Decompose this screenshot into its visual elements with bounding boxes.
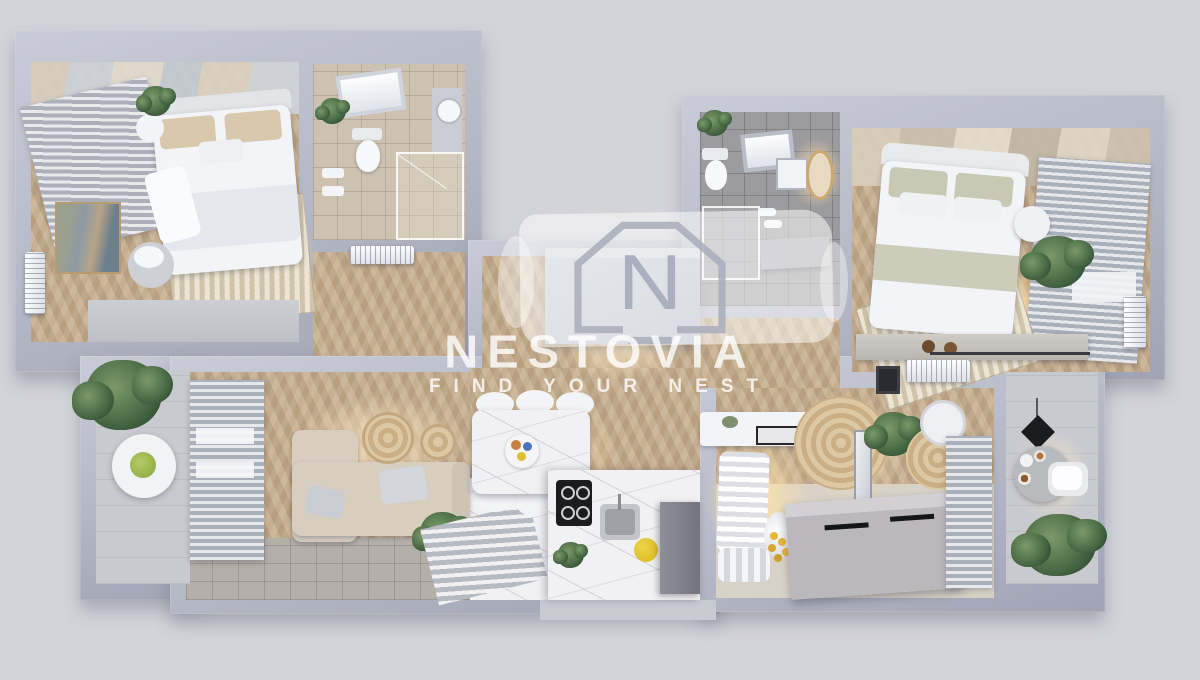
wall-artwork (55, 202, 121, 274)
food (511, 440, 521, 450)
towel (322, 168, 344, 178)
towel (322, 186, 344, 196)
plate (1018, 472, 1031, 485)
plate (1034, 450, 1046, 462)
toilet (705, 160, 727, 190)
tv-rail (930, 352, 1090, 355)
logo-letter-n: N (604, 240, 696, 324)
brand-tagline: FIND YOUR NEST (390, 376, 810, 398)
bedroom-2-bed (866, 142, 1030, 346)
window (196, 462, 254, 478)
ribbed-cushion (718, 548, 770, 582)
burner (561, 506, 575, 520)
bedside-table (136, 114, 164, 142)
burner (576, 506, 590, 520)
platform-bed (785, 492, 963, 600)
bed-handle (890, 514, 934, 522)
ac-unit (906, 360, 970, 382)
burner (561, 486, 575, 500)
food (523, 442, 532, 451)
pillow (898, 192, 948, 218)
window (196, 428, 254, 444)
side-table (1014, 206, 1050, 242)
ac-unit (1124, 296, 1146, 348)
plate (1020, 454, 1033, 467)
food (517, 452, 526, 461)
chair-cushion (1052, 466, 1082, 490)
bed-handle (824, 522, 868, 530)
burner (576, 486, 590, 500)
brand-wordmark: NESTOVIA (390, 325, 810, 379)
sink (436, 98, 462, 124)
ac-unit (350, 246, 414, 264)
oval-mirror (806, 150, 834, 200)
floorplan-render: N NESTOVIA FIND YOUR NEST (0, 0, 1200, 680)
faucet (618, 494, 621, 510)
cooktop (556, 480, 592, 526)
lemon-bowl (634, 538, 658, 562)
wall-basket-decor (420, 424, 456, 460)
toilet-tank (702, 148, 728, 160)
tall-cabinet-fridge (660, 502, 700, 594)
toilet-tank (352, 128, 382, 140)
sink-basin (605, 509, 635, 535)
pouf-blanket (134, 246, 164, 268)
photo-frame (876, 366, 900, 394)
toilet (356, 140, 380, 172)
yellow-flowers (770, 532, 778, 540)
table-plant (130, 452, 156, 478)
cushion (378, 465, 428, 505)
pillow (952, 196, 1002, 222)
console-sideboard (856, 334, 1088, 360)
pillow (198, 139, 244, 165)
bedding-stack (716, 451, 769, 553)
bedroom-1-bed (149, 88, 306, 278)
serving-plate (505, 434, 539, 468)
shower-enclosure (396, 152, 464, 240)
kitchen-sink (600, 504, 640, 540)
low-cabinet (88, 300, 299, 342)
room-curtains (946, 436, 992, 588)
ac-unit (25, 252, 45, 314)
vanity-sink (776, 158, 808, 190)
teapot (722, 416, 738, 428)
entry-step (540, 600, 716, 620)
wall-basket-decor (362, 412, 414, 464)
